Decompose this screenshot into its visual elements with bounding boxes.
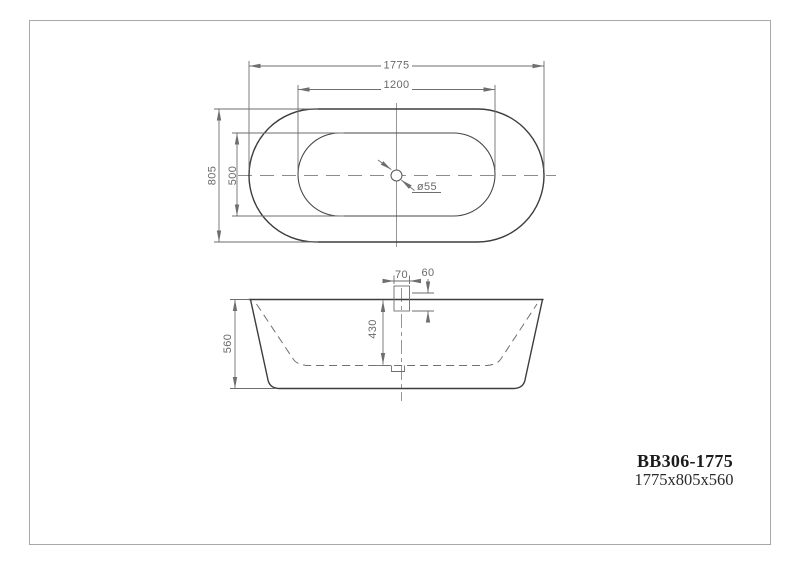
top-view: ø55 1775 1200 805 <box>207 60 557 248</box>
drain-recess <box>392 366 405 372</box>
dim-inner-depth: 430 <box>367 301 391 366</box>
inner-width-label: 500 <box>227 166 239 186</box>
tub-side-outline <box>249 300 543 389</box>
dim-overflow-width: 70 <box>385 269 419 284</box>
drain-callout: ø55 <box>378 160 441 193</box>
drain-diameter-label: ø55 <box>417 181 437 193</box>
drawing-page: ø55 1775 1200 805 <box>0 0 800 565</box>
drain-leader-arrow-2 <box>401 180 414 191</box>
inner-depth-label: 430 <box>367 319 379 339</box>
overflow-width-label: 70 <box>395 269 408 281</box>
technical-drawing: ø55 1775 1200 805 <box>0 0 800 565</box>
dim-overflow-offset: 60 <box>412 267 435 318</box>
dim-inner-width: 500 <box>227 133 344 216</box>
dim-overall-height: 560 <box>222 300 276 389</box>
tub-side-inner-profile <box>257 304 538 372</box>
inner-profile-dashed <box>257 304 538 366</box>
overall-height-label: 560 <box>222 334 234 354</box>
outer-profile <box>251 300 543 389</box>
title-block: BB306-1775 1775x805x560 <box>635 451 734 489</box>
drain-leader-arrow-1 <box>378 160 391 170</box>
overflow-offset-label: 60 <box>421 267 434 279</box>
outer-length-label: 1775 <box>383 60 409 72</box>
side-view: 560 430 70 60 <box>222 267 543 401</box>
model-number: BB306-1775 <box>637 451 733 471</box>
outer-width-label: 805 <box>207 166 219 186</box>
inner-length-label: 1200 <box>383 79 409 91</box>
drain-circle <box>391 170 402 181</box>
overall-size: 1775x805x560 <box>635 470 734 489</box>
